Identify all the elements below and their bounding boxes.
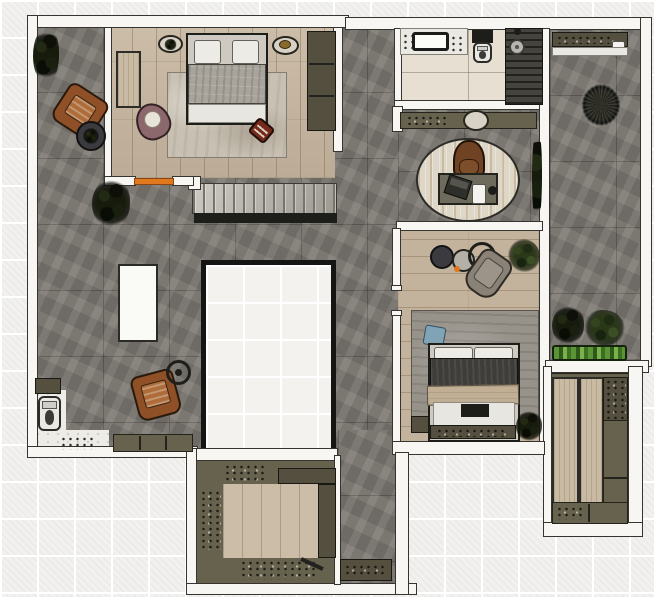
floorplan-canvas [0,0,654,597]
bedroom1-wardrobe [307,31,336,131]
bedroom2-table-dark [430,245,454,269]
balcony-plant-a [552,305,584,345]
office-console-items [406,115,446,125]
wall-living-right-lower [392,312,401,444]
closet-bottom-div [588,504,590,522]
shower-valve [514,28,521,35]
wall-kitchen-top [188,448,338,461]
wall-bedroom2-bottom [392,441,545,455]
wall-office-bedroom2 [396,221,543,231]
wall-closet-right [628,366,643,536]
living-table-plant [83,128,99,144]
wall-kitchen-bottom [186,583,417,595]
living-plant-2 [92,178,130,228]
bath-toilet [473,42,492,63]
sideboard-div-2 [165,436,167,450]
bed1-duvet [188,64,266,104]
office-notepad [472,184,486,204]
bed2-ledge-items [436,428,506,437]
closet-cabinet-low [603,478,628,504]
closet-wood-panel-b [579,377,604,504]
living-plant-top [33,27,59,83]
wardrobe-divider-1 [309,63,334,65]
wc-toilet [38,396,61,431]
closet-bottom-items [556,506,584,520]
bed1-decor-plant-left [164,39,177,50]
closet-cabinet-mid [603,420,628,478]
wall-top-left [27,15,349,28]
kitchen-counter-items-left [200,490,221,550]
staircase [192,183,337,214]
bath-vanity-items-left [402,33,412,49]
bath-sink [412,32,449,51]
wc-shelf [35,378,61,394]
floorplan-stage [0,0,654,597]
wall-bedroom1-bottom-b [172,176,194,186]
hall-console-items [344,564,388,575]
shower-floor [505,28,543,105]
office-plant-strip [532,128,542,224]
wall-closet-bottom [543,522,643,537]
bedroom2-nightstand [411,416,429,433]
wardrobe-divider-2 [309,95,334,97]
balcony-hanging-chair [576,78,626,132]
door-sill-bedroom1 [134,178,174,185]
sideboard-div-1 [139,436,141,450]
kitchen-counter-items-top [224,464,264,482]
living-table2-dot [175,369,182,376]
kitchen-right-strip [318,484,336,558]
balcony-ledge [552,47,628,56]
balcony-plant-b [583,310,625,346]
wall-living-right-upper [392,228,401,288]
office-desk-item [488,186,497,195]
balcony-shelf-items [556,35,614,44]
closet-cabinet-top-items [605,379,626,419]
door-jamb-bedroom2-b [391,310,402,316]
wall-kitchen-left [186,448,197,595]
bed2-bench [461,404,489,417]
bed1-pillow-left [194,40,221,64]
shower-head [509,39,525,55]
door-jamb-bedroom2-a [391,285,402,291]
wall-balcony-right [640,17,652,367]
office-console-decor [463,110,489,131]
wall-top-right [345,17,650,30]
bedroom2-orange-dot [454,266,460,272]
bed1-foot-sheet [188,104,266,123]
wall-corridor-right [395,452,409,595]
wc-scatter-items [60,436,94,450]
staircase-edge [194,213,337,223]
living-sideboard [113,434,193,452]
bedroom2-plant [508,239,540,273]
closet-wood-panel-a [552,377,579,504]
bed1-decor-brass [279,40,291,49]
bedroom1-side-panel [116,51,141,108]
bed1-pillow-right [232,40,259,64]
bath-vanity-items-right [450,35,465,52]
kitchen-wood-floor [223,484,318,558]
island-table [118,264,158,342]
balcony-planter [552,345,627,361]
bedroom2-plant-corner [516,410,542,442]
floor-void [201,260,336,454]
kitchen-shelf-tier [278,468,336,484]
